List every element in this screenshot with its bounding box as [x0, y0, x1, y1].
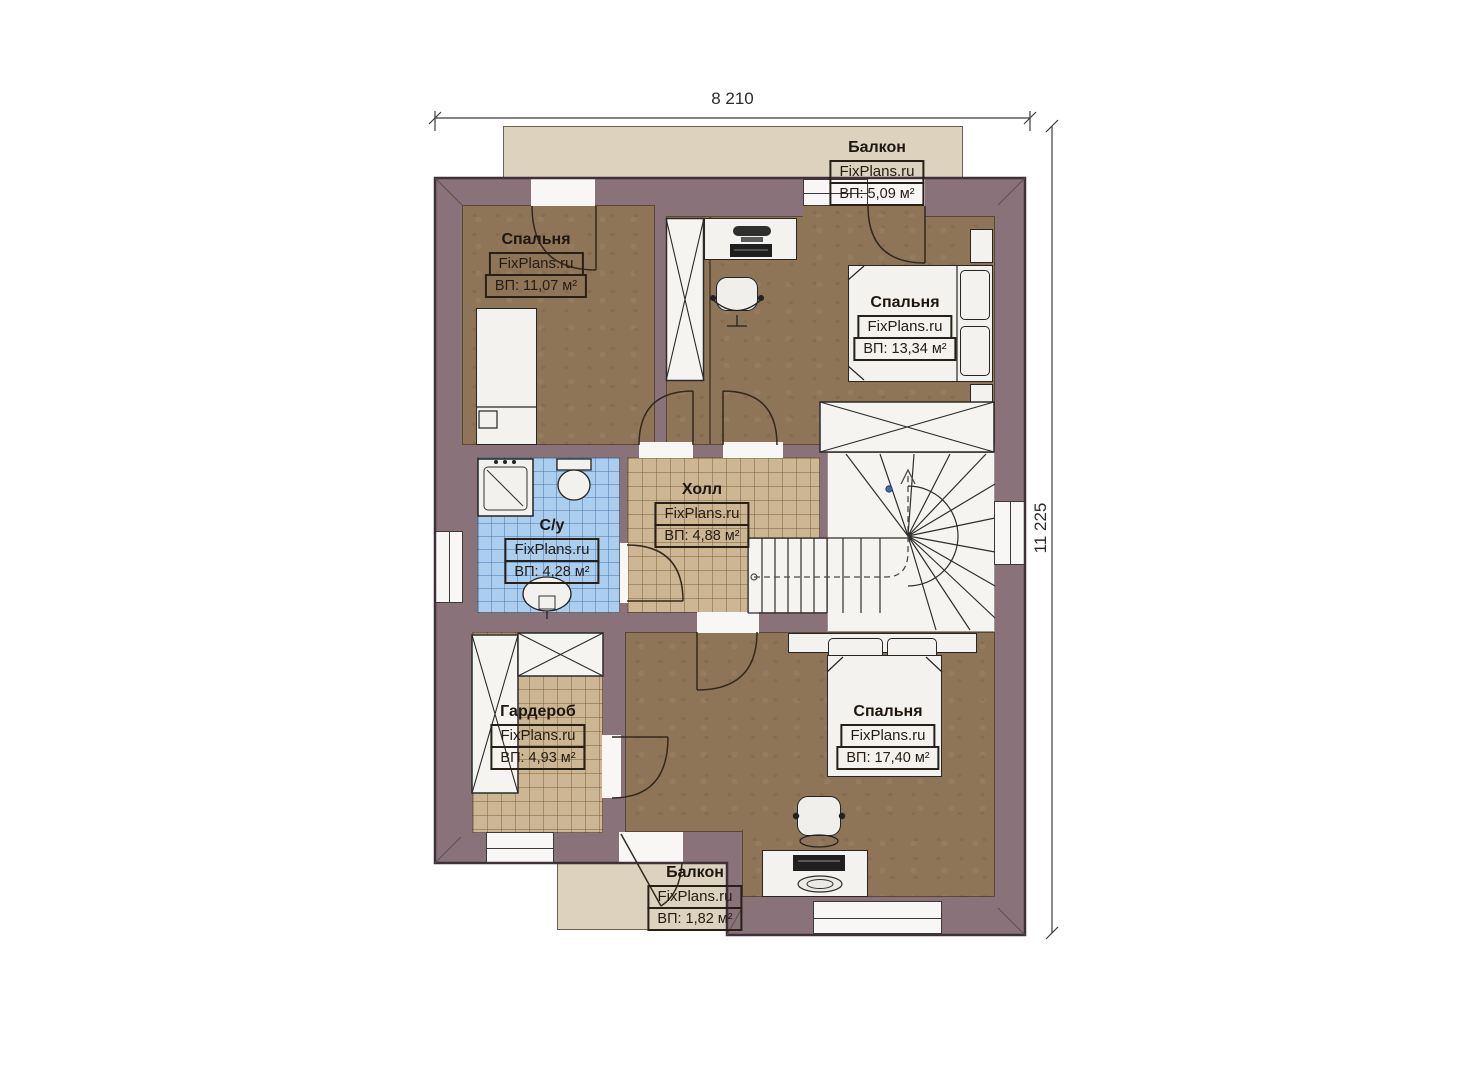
floor-plan: Балкон FixPlans.ru ВП: 5,09 м² Спальня F…	[0, 0, 1473, 1080]
dimension-height: 11 225	[1031, 503, 1051, 554]
door-opening-bathroom	[620, 543, 628, 603]
stair-flight	[748, 538, 827, 613]
brand-box: FixPlans.ru	[488, 252, 583, 277]
area-box: ВП: 17,40 м²	[836, 746, 939, 770]
brand-box: FixPlans.ru	[654, 502, 749, 527]
room-name: Балкон	[848, 139, 906, 157]
nightstand-top-right-1	[970, 229, 993, 263]
label-bedroom-top-right: Спальня FixPlans.ru ВП: 13,34 м²	[853, 294, 956, 361]
label-balcony-bottom: Балкон FixPlans.ru ВП: 1,82 м²	[647, 864, 742, 931]
brand-box: FixPlans.ru	[829, 160, 924, 185]
label-bedroom-bottom: Спальня FixPlans.ru ВП: 17,40 м²	[836, 703, 939, 770]
door-opening-bedroom-top-right	[723, 442, 783, 458]
nightstand-top-right-2	[970, 384, 993, 418]
floor-stairwell	[827, 452, 995, 632]
label-bedroom-top-left: Спальня FixPlans.ru ВП: 11,07 м²	[485, 231, 587, 298]
brand-box: FixPlans.ru	[857, 315, 952, 340]
chair-bottom	[797, 796, 841, 836]
dimension-width: 8 210	[435, 89, 1030, 109]
room-name: Гардероб	[500, 703, 576, 721]
chair-top-right	[716, 277, 758, 311]
area-box: ВП: 11,07 м²	[485, 274, 587, 298]
brand-box: FixPlans.ru	[490, 724, 585, 749]
balcony-door-opening-bottom	[619, 832, 683, 863]
label-balcony-top: Балкон FixPlans.ru ВП: 5,09 м²	[829, 139, 924, 206]
window-bottom-right	[813, 901, 942, 934]
room-name: Спальня	[870, 294, 939, 312]
label-hall: Холл FixPlans.ru ВП: 4,88 м²	[654, 481, 749, 548]
window-left	[435, 531, 463, 603]
desk-top-right	[704, 218, 797, 260]
door-opening-bedroom-bottom	[697, 612, 759, 633]
desk-bottom	[762, 850, 868, 897]
brand-box: FixPlans.ru	[504, 538, 599, 563]
door-opening-bedroom-top-left	[639, 442, 693, 458]
brand-box: FixPlans.ru	[840, 724, 935, 749]
pillow-top-right-2	[960, 326, 990, 376]
label-bathroom: С/у FixPlans.ru ВП: 4,28 м²	[504, 517, 599, 584]
window-bottom-left	[486, 832, 554, 863]
area-box: ВП: 4,28 м²	[504, 560, 599, 584]
label-wardrobe: Гардероб FixPlans.ru ВП: 4,93 м²	[490, 703, 585, 770]
bed-single-top-left	[476, 308, 537, 445]
area-box: ВП: 5,09 м²	[829, 182, 924, 206]
brand-box: FixPlans.ru	[647, 885, 742, 910]
balcony-door-opening-top-left	[531, 179, 595, 206]
area-box: ВП: 13,34 м²	[853, 337, 956, 361]
window-right	[994, 501, 1026, 565]
room-name: Холл	[682, 481, 722, 499]
door-opening-wardrobe	[602, 735, 621, 798]
area-box: ВП: 4,93 м²	[490, 746, 585, 770]
room-name: Спальня	[501, 231, 570, 249]
area-box: ВП: 1,82 м²	[647, 907, 742, 931]
area-box: ВП: 4,88 м²	[654, 524, 749, 548]
room-name: С/у	[540, 517, 565, 535]
room-name: Балкон	[666, 864, 724, 882]
room-name: Спальня	[853, 703, 922, 721]
pillow-top-right-1	[960, 270, 990, 320]
